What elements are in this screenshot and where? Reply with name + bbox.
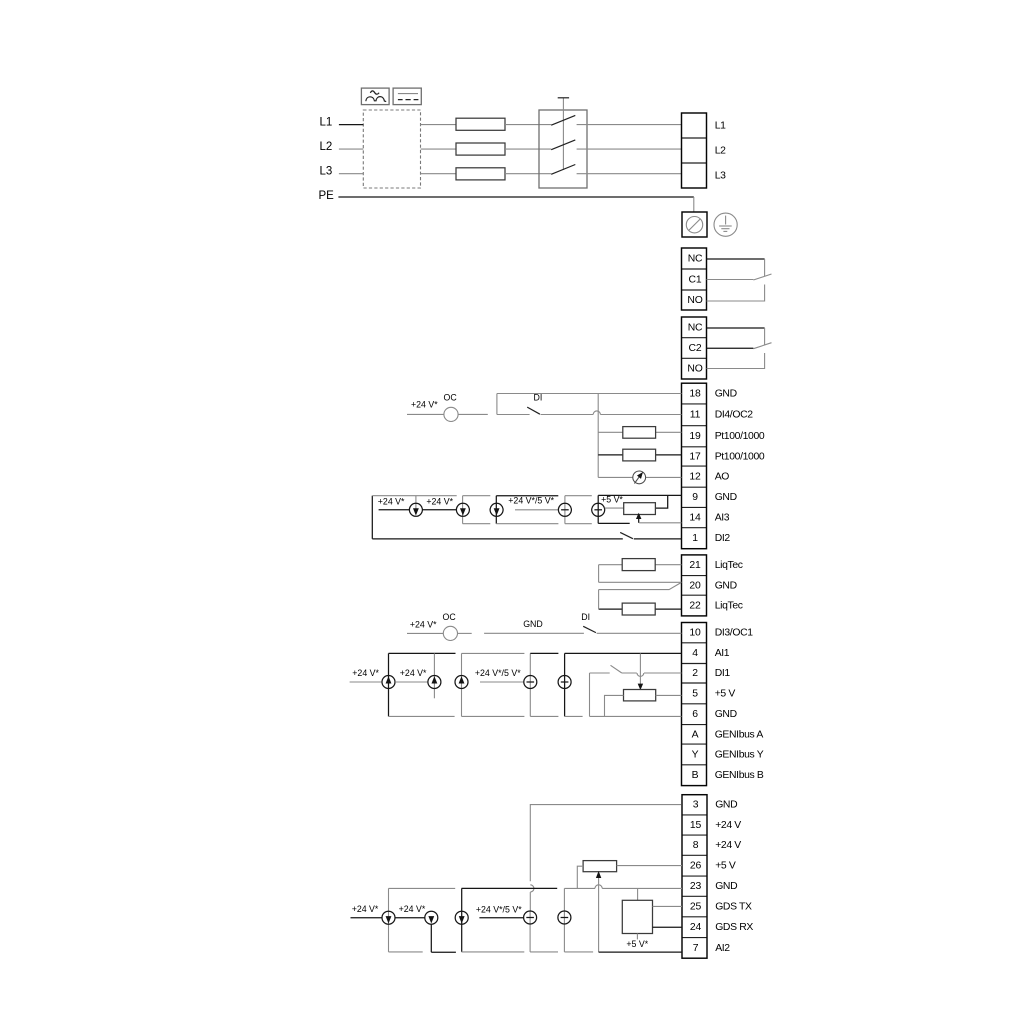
svg-text:+24 V*: +24 V* (426, 497, 453, 507)
svg-text:L2: L2 (320, 141, 333, 153)
svg-text:+24 V*/5 V*: +24 V*/5 V* (475, 668, 521, 678)
svg-text:L3: L3 (715, 170, 726, 181)
svg-text:NC: NC (688, 253, 703, 264)
svg-text:C2: C2 (689, 343, 702, 354)
svg-text:19: 19 (689, 431, 701, 442)
svg-text:20: 20 (689, 580, 701, 591)
svg-text:A: A (692, 729, 699, 740)
svg-text:B: B (692, 770, 699, 781)
svg-text:1: 1 (692, 533, 698, 544)
svg-text:GND: GND (715, 388, 737, 399)
svg-text:18: 18 (689, 388, 701, 399)
svg-text:24: 24 (690, 922, 702, 933)
svg-text:12: 12 (689, 472, 701, 483)
svg-text:OC: OC (443, 612, 457, 622)
svg-text:3: 3 (693, 800, 699, 811)
svg-text:5: 5 (692, 688, 698, 699)
svg-text:GDS RX: GDS RX (715, 922, 753, 933)
svg-text:+24 V*: +24 V* (352, 668, 379, 678)
svg-text:GND: GND (715, 800, 737, 811)
svg-text:Pt100/1000: Pt100/1000 (715, 451, 765, 462)
svg-text:+24 V*/5 V*: +24 V*/5 V* (476, 904, 522, 914)
svg-text:+24 V*: +24 V* (410, 619, 437, 629)
svg-text:GND: GND (715, 580, 737, 591)
svg-text:GENIbus B: GENIbus B (715, 770, 764, 781)
svg-text:9: 9 (692, 492, 698, 503)
svg-text:21: 21 (689, 560, 701, 571)
svg-text:NO: NO (687, 295, 702, 306)
svg-text:22: 22 (689, 600, 701, 611)
svg-text:6: 6 (692, 709, 698, 720)
svg-text:+24 V*/5 V*: +24 V*/5 V* (508, 496, 554, 506)
svg-text:25: 25 (690, 901, 702, 912)
svg-text:L1: L1 (715, 120, 726, 131)
svg-text:+24 V*: +24 V* (378, 497, 405, 507)
svg-text:DI4/OC2: DI4/OC2 (715, 410, 754, 421)
svg-text:+24 V*: +24 V* (352, 904, 379, 914)
svg-text:GENIbus Y: GENIbus Y (715, 749, 764, 760)
svg-text:L2: L2 (715, 145, 726, 156)
svg-text:DI1: DI1 (715, 668, 731, 679)
svg-text:LiqTec: LiqTec (715, 600, 743, 611)
svg-text:GND: GND (715, 881, 737, 892)
svg-text:8: 8 (693, 840, 699, 851)
svg-text:+24 V*: +24 V* (399, 904, 426, 914)
svg-text:+24 V: +24 V (715, 840, 741, 851)
svg-text:PE: PE (319, 190, 335, 202)
svg-text:DI: DI (581, 612, 590, 622)
svg-text:14: 14 (689, 512, 701, 523)
svg-text:+5 V: +5 V (715, 688, 736, 699)
svg-text:11: 11 (690, 410, 701, 421)
svg-text:+5 V*: +5 V* (601, 495, 623, 505)
svg-text:+5 V*: +5 V* (626, 939, 648, 949)
svg-text:L1: L1 (320, 116, 333, 128)
svg-text:+24 V*: +24 V* (411, 399, 438, 409)
svg-text:4: 4 (692, 648, 698, 659)
svg-text:Y: Y (692, 749, 699, 760)
svg-text:15: 15 (690, 820, 702, 831)
svg-text:GDS TX: GDS TX (715, 901, 752, 912)
svg-text:Pt100/1000: Pt100/1000 (715, 431, 765, 442)
svg-text:L3: L3 (320, 165, 333, 177)
svg-text:AO: AO (715, 472, 730, 483)
svg-text:7: 7 (693, 943, 699, 954)
svg-text:AI1: AI1 (715, 648, 730, 659)
svg-text:DI2: DI2 (715, 533, 731, 544)
svg-text:LiqTec: LiqTec (715, 560, 743, 571)
svg-text:23: 23 (690, 881, 702, 892)
svg-text:26: 26 (690, 861, 702, 872)
svg-text:DI3/OC1: DI3/OC1 (715, 628, 754, 639)
svg-text:OC: OC (444, 392, 458, 402)
svg-text:NC: NC (688, 322, 703, 333)
svg-text:GND: GND (523, 619, 543, 629)
svg-text:2: 2 (692, 668, 698, 679)
svg-text:+5 V: +5 V (715, 861, 736, 872)
svg-text:AI2: AI2 (715, 943, 730, 954)
svg-text:GND: GND (715, 492, 737, 503)
svg-text:NO: NO (687, 364, 702, 375)
svg-text:+24 V: +24 V (715, 820, 741, 831)
svg-text:DI: DI (534, 392, 543, 402)
svg-text:10: 10 (689, 628, 701, 639)
svg-text:C1: C1 (689, 274, 702, 285)
svg-text:GND: GND (715, 709, 737, 720)
svg-text:17: 17 (689, 451, 701, 462)
svg-text:GENIbus A: GENIbus A (715, 729, 764, 740)
svg-text:AI3: AI3 (715, 512, 730, 523)
svg-text:+24 V*: +24 V* (400, 668, 427, 678)
